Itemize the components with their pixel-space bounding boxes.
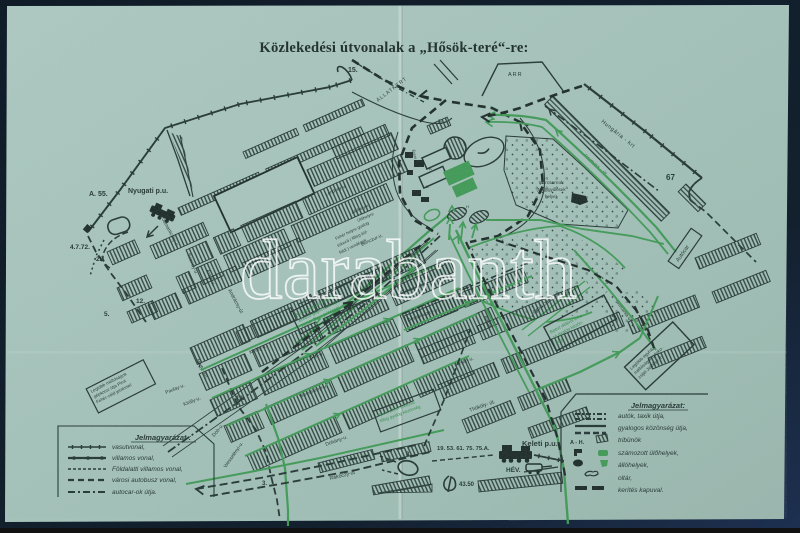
svg-text:darabanth: darabanth [240,223,577,317]
